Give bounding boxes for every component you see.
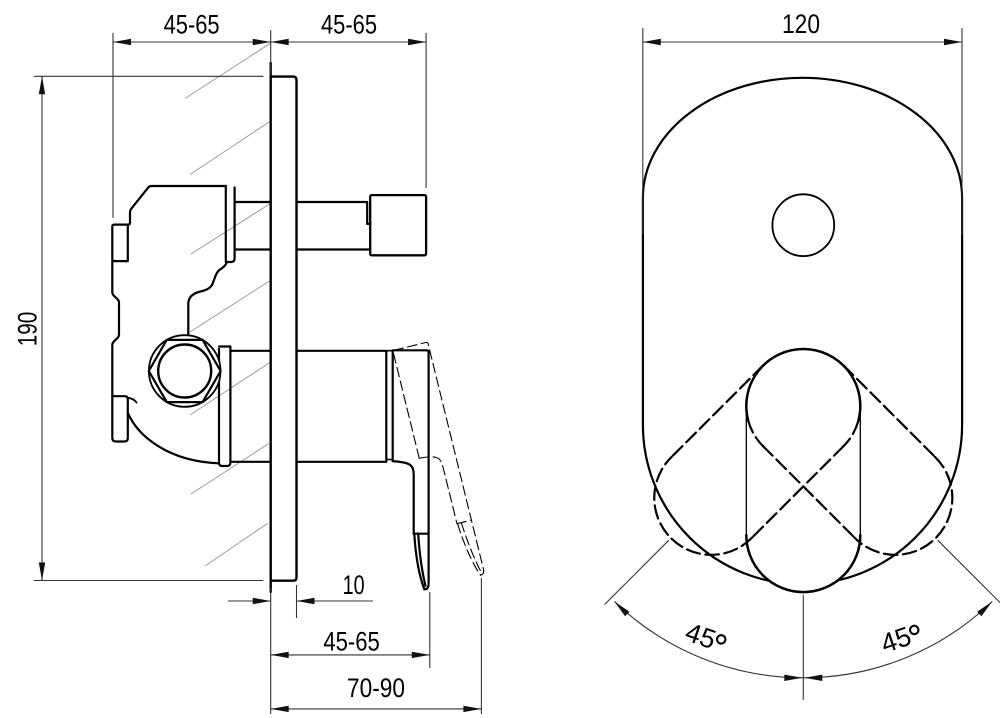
svg-text:45-65: 45-65 — [321, 10, 377, 40]
svg-text:120: 120 — [782, 9, 820, 39]
svg-text:190: 190 — [13, 312, 43, 347]
svg-text:70-90: 70-90 — [347, 673, 405, 703]
svg-text:45-65: 45-65 — [323, 627, 380, 657]
svg-text:45-65: 45-65 — [164, 10, 220, 40]
svg-text:10: 10 — [343, 570, 365, 600]
